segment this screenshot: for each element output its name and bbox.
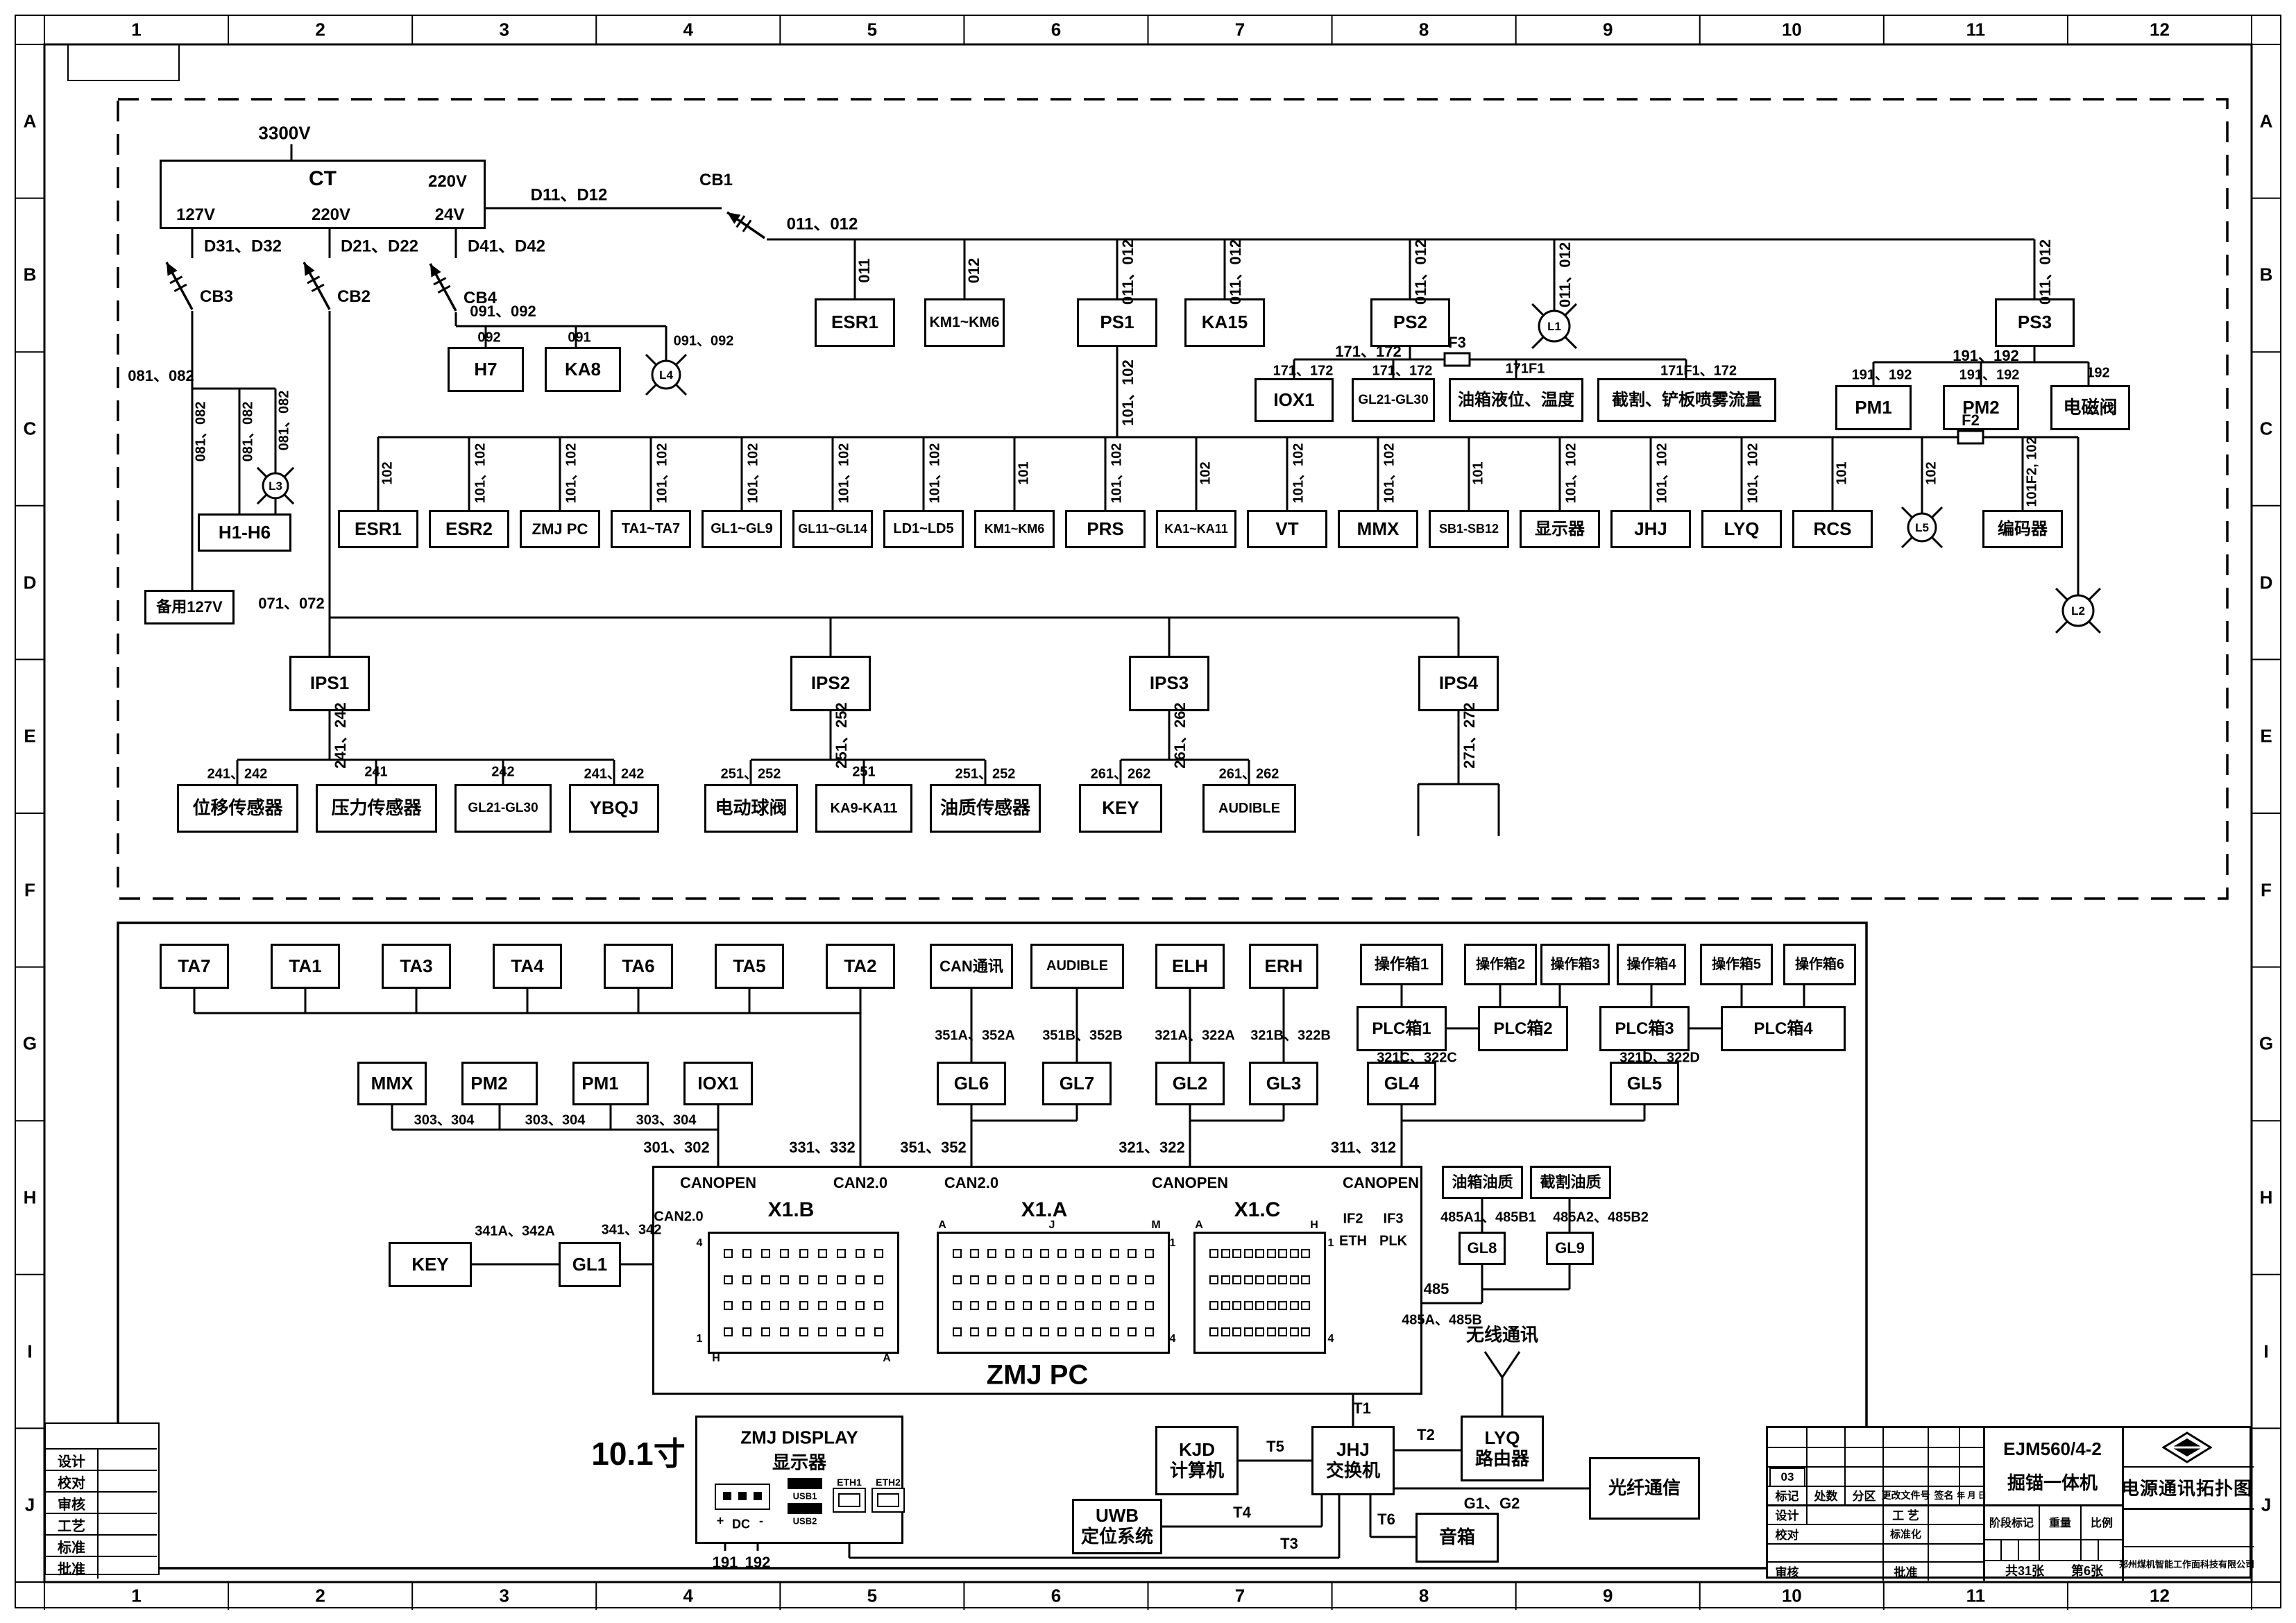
signature-row: 工艺	[46, 1513, 157, 1536]
pin	[1057, 1275, 1066, 1284]
box-label: UWB	[1096, 1506, 1139, 1527]
lamp-label: L4	[659, 368, 673, 382]
grid-col-1: 1	[131, 1586, 141, 1607]
box-label: JHJ	[1336, 1440, 1370, 1461]
box-label: CAN通讯	[939, 958, 1003, 975]
dc-pin	[738, 1492, 747, 1500]
wire-label: 303、304	[414, 1109, 475, 1129]
device-elh: ELH	[1155, 944, 1225, 989]
wire-label: J	[1049, 1219, 1055, 1232]
bus-rcs: RCS	[1792, 510, 1873, 548]
lamp-label: L1	[1547, 320, 1561, 333]
pin	[970, 1275, 979, 1284]
wire-label: 191、192	[1852, 364, 1912, 384]
grid-col-11: 11	[1966, 1586, 1986, 1607]
wire-label: A	[1195, 1219, 1203, 1232]
wire-label: 241、242	[207, 763, 268, 783]
box-label: PS1	[1100, 312, 1134, 333]
box-label: GL4	[1384, 1073, 1420, 1094]
box-label: GL1	[572, 1255, 608, 1275]
device-ka15: KA15	[1184, 298, 1265, 347]
bus-gl11-gl14: GL11~GL14	[792, 510, 873, 548]
usb1-port	[788, 1478, 822, 1489]
pin	[1278, 1275, 1287, 1284]
pin	[1278, 1249, 1287, 1258]
grid-col-11: 11	[1966, 19, 1986, 41]
pin	[1023, 1249, 1032, 1258]
box-label: 油箱油质	[1452, 1173, 1513, 1191]
wire-label: 101、102	[1287, 443, 1307, 504]
wire-label: H	[1310, 1219, 1318, 1232]
box-label: TA1~TA7	[622, 521, 680, 537]
wire-label: 091	[568, 330, 590, 346]
box-label: KA1~KA11	[1164, 522, 1228, 536]
wire-label: 261、262	[1219, 763, 1279, 783]
box-label: 操作箱3	[1550, 957, 1599, 973]
pin	[1267, 1327, 1276, 1336]
wire-label: 171、172	[1335, 339, 1401, 362]
box-label: H7	[474, 359, 497, 380]
pin	[1075, 1327, 1084, 1336]
pin	[1301, 1249, 1310, 1258]
box-label: GL1~GL9	[711, 521, 772, 537]
box-label: PS2	[1393, 312, 1427, 333]
wire-label: 192	[2086, 366, 2109, 382]
box-label: KM1~KM6	[930, 314, 1000, 331]
tb-approve: 批准	[1884, 1561, 1928, 1581]
grid-row-C: C	[24, 418, 37, 440]
spray-flow: 截割、铲板喷雾流量	[1597, 378, 1776, 422]
bus-prs: PRS	[1065, 510, 1146, 548]
pin	[874, 1249, 883, 1258]
op-box-6: 操作箱6	[1783, 944, 1856, 985]
tank-oil-quality: 油箱油质	[1442, 1166, 1523, 1199]
pin	[724, 1301, 733, 1310]
pin	[987, 1301, 996, 1310]
box-label: SB1-SB12	[1439, 522, 1499, 536]
device-key-ips3: KEY	[1079, 784, 1162, 833]
pin	[837, 1327, 846, 1336]
pin	[970, 1327, 979, 1336]
wire-label: A	[938, 1219, 946, 1232]
grid-row-A: A	[2260, 110, 2273, 132]
pin	[1244, 1301, 1253, 1310]
wire-label: ZMJ DISPLAY	[740, 1427, 858, 1449]
box-label: KEY	[411, 1255, 448, 1275]
pin	[1057, 1301, 1066, 1310]
wire-label: ETH1	[837, 1477, 862, 1488]
grid-col-4: 4	[683, 1586, 693, 1607]
device-ka8: KA8	[545, 347, 621, 392]
wire-label: 081、082	[273, 391, 293, 451]
box-label: 操作箱2	[1476, 957, 1525, 973]
box-label: GL8	[1468, 1239, 1497, 1257]
pin	[761, 1327, 770, 1336]
tb-check: 校对	[1768, 1524, 1806, 1543]
pin	[1290, 1301, 1299, 1310]
wire	[1502, 1352, 1520, 1377]
lamp-label: L3	[269, 479, 282, 493]
tb-rev-date: 年 月 日	[1960, 1486, 1983, 1504]
pin	[1092, 1301, 1101, 1310]
device-gl21-gl30-ips: GL21-GL30	[454, 784, 552, 833]
wire-label: 091、092	[674, 330, 734, 350]
wire-label: 101、102	[833, 443, 853, 504]
wire-label: CANOPEN	[1343, 1174, 1419, 1192]
wire-label: D31、D32	[204, 232, 282, 257]
grid-row-G: G	[2259, 1033, 2273, 1055]
signature-role-5: 标准	[46, 1536, 99, 1557]
wire-label: 311、312	[1331, 1135, 1396, 1157]
wire-label: 220V	[428, 172, 467, 192]
tb-weight: 重量	[2040, 1506, 2080, 1538]
device-gl3: GL3	[1249, 1062, 1318, 1105]
tb-drawing-title: 电源通讯拓扑图	[2122, 1466, 2252, 1508]
tb-design: 设计	[1768, 1504, 1806, 1524]
wire-label: 101	[1017, 461, 1032, 484]
wire-label: T1	[1353, 1400, 1371, 1418]
tb-stage: 阶段标记	[1984, 1506, 2039, 1538]
wire-label: T4	[1233, 1504, 1251, 1522]
wire-label: 171F1	[1506, 362, 1545, 377]
wire-label: 251、252	[955, 763, 1016, 783]
tb-machine: 掘锚一体机	[1983, 1466, 2122, 1497]
wire-label: 显示器	[772, 1449, 826, 1475]
box-label: 显示器	[1535, 520, 1585, 539]
wire-label: 011	[856, 258, 874, 283]
pin	[780, 1275, 789, 1284]
wire-label: 351B、352B	[1042, 1024, 1123, 1044]
fiber-comm: 光纤通信	[1589, 1457, 1700, 1520]
box-label: AUDIBLE	[1218, 801, 1280, 817]
electric-ball-valve: 电动球阀	[704, 784, 798, 833]
wire-label: 261、262	[1091, 763, 1151, 783]
wire-label: 101	[1835, 461, 1851, 484]
box-label: 位移传感器	[192, 798, 282, 819]
pin	[1128, 1249, 1137, 1258]
pin	[1057, 1249, 1066, 1258]
pin	[1005, 1249, 1014, 1258]
grid-col-8: 8	[1419, 1586, 1429, 1607]
wire-label: 351、352	[900, 1135, 966, 1157]
pin	[1267, 1249, 1276, 1258]
box-label: 操作箱6	[1795, 957, 1844, 973]
wire-label: 102	[380, 461, 396, 484]
wire-label: T2	[1417, 1426, 1435, 1444]
pin	[818, 1249, 827, 1258]
pin	[742, 1301, 751, 1310]
wire-label: 101、102	[1742, 443, 1762, 504]
box-label: GL7	[1060, 1073, 1095, 1094]
pin-connector	[708, 1232, 899, 1354]
wire-label: 331、332	[789, 1135, 855, 1157]
bus-jhj: JHJ	[1610, 510, 1691, 548]
box-label: 油质传感器	[940, 798, 1030, 819]
box-label: MMX	[1357, 519, 1400, 540]
wire-label: F3	[1448, 334, 1466, 352]
box-label: TA1	[289, 956, 321, 977]
wire-label: 251	[852, 765, 875, 781]
pin	[1040, 1327, 1049, 1336]
pin	[780, 1301, 789, 1310]
device-pm2-lower: PM2	[461, 1062, 538, 1105]
pin	[799, 1301, 808, 1310]
pin	[1023, 1301, 1032, 1310]
device-gl7: GL7	[1042, 1062, 1112, 1105]
box-sublabel: 交换机	[1326, 1461, 1380, 1481]
pin	[1110, 1301, 1119, 1310]
pin	[837, 1275, 846, 1284]
wire-label: 127V	[176, 205, 215, 225]
bus-encoder: 编码器	[1982, 510, 2063, 548]
pin	[1278, 1327, 1287, 1336]
left-signature-table: 设计校对审核工艺标准批准	[44, 1422, 160, 1575]
box-label: TA3	[400, 956, 432, 977]
revision-marker: 03	[1769, 1468, 1805, 1487]
wire-label: 081、082	[237, 402, 257, 462]
box-label: VT	[1275, 519, 1298, 540]
pin	[1255, 1275, 1264, 1284]
eth1-port-inner	[838, 1493, 860, 1507]
pin	[1255, 1301, 1264, 1310]
pin	[1075, 1301, 1084, 1310]
box-label: KEY	[1102, 798, 1139, 819]
grid-row-E: E	[2260, 726, 2272, 747]
solenoid-valve: 电磁阀	[2050, 385, 2130, 430]
wire-label: CT	[309, 167, 337, 191]
device-h1-h6: H1-H6	[198, 513, 291, 552]
wire-label: 321A、322A	[1155, 1024, 1235, 1044]
box-label: GL21-GL30	[468, 801, 538, 816]
grid-row-H: H	[24, 1187, 37, 1209]
device-key-lower: KEY	[389, 1242, 472, 1287]
usb2-port	[788, 1503, 822, 1514]
displacement-sensor: 位移传感器	[177, 784, 298, 833]
box-label: 操作箱5	[1712, 957, 1761, 973]
wire-label: 341A、342A	[475, 1220, 555, 1240]
lamp-label: L2	[2071, 604, 2085, 618]
box-label: MMX	[371, 1073, 414, 1094]
pin	[1040, 1301, 1049, 1310]
power-ps1: PS1	[1077, 298, 1157, 347]
device-gl21-gl30-upper: GL21-GL30	[1352, 378, 1435, 422]
wire-label: CAN2.0	[833, 1174, 887, 1192]
wire-label: A	[883, 1352, 891, 1365]
pin	[1075, 1249, 1084, 1258]
box-label: PLC箱2	[1493, 1019, 1552, 1039]
grid-row-J: J	[2261, 1495, 2271, 1516]
wire-label: 241	[364, 765, 387, 781]
wire-label: CAN2.0	[944, 1174, 998, 1192]
wire-label: 321C、322C	[1377, 1046, 1457, 1067]
wire-label: 101、102	[560, 443, 580, 504]
pin	[1209, 1327, 1218, 1336]
wire-label: 191	[713, 1554, 738, 1572]
plc-box-1: PLC箱1	[1357, 1006, 1447, 1051]
uwb-positioning: UWB定位系统	[1072, 1499, 1162, 1554]
wire-label: ZMJ PC	[987, 1360, 1089, 1391]
box-label: TA5	[733, 956, 765, 977]
wire-label: 485	[1424, 1280, 1449, 1298]
company-logo	[2162, 1431, 2212, 1463]
bus-km1-km6: KM1~KM6	[974, 510, 1055, 548]
box-label: 编码器	[1998, 520, 2048, 539]
grid-col-2: 2	[315, 19, 325, 41]
wire-label: CANOPEN	[1152, 1174, 1228, 1192]
bus-gl1-gl9: GL1~GL9	[701, 510, 782, 548]
device-ta2: TA2	[826, 944, 895, 989]
pin	[1005, 1275, 1014, 1284]
wire-label: 101F2, 102	[2025, 436, 2041, 507]
pin	[780, 1249, 789, 1258]
box-label: ESR1	[355, 519, 402, 540]
plc-box-3: PLC箱3	[1599, 1006, 1690, 1051]
box-label: 截割油质	[1540, 1173, 1601, 1191]
tb-rev-zone: 分区	[1846, 1486, 1882, 1504]
box-label: LYQ	[1484, 1428, 1520, 1449]
pin	[1023, 1275, 1032, 1284]
device-ta4: TA4	[493, 944, 562, 989]
pin	[1301, 1327, 1310, 1336]
bus-esr1: ESR1	[338, 510, 418, 548]
pin	[724, 1275, 733, 1284]
device-ta1: TA1	[271, 944, 340, 989]
wire-label: USB1	[793, 1491, 817, 1502]
grid-row-E: E	[24, 726, 35, 747]
wire-label: 192	[745, 1554, 771, 1572]
bus-vt: VT	[1247, 510, 1327, 548]
pin	[1267, 1275, 1276, 1284]
box-label: TA7	[178, 956, 210, 977]
grid-col-9: 9	[1603, 1586, 1613, 1607]
wire-label: 101、102	[1105, 443, 1125, 504]
signature-row: 设计	[46, 1448, 157, 1471]
pin	[724, 1249, 733, 1258]
pin	[1128, 1275, 1137, 1284]
box-label: 操作箱1	[1375, 955, 1429, 973]
box-label: RCS	[1814, 519, 1852, 540]
title-block: 03 标记 处数 分区 更改文件号 签名 年 月 日 设计 工 艺 校对 标准化…	[1766, 1426, 2252, 1579]
pin	[799, 1249, 808, 1258]
pin	[1092, 1275, 1101, 1284]
box-label: PM1	[581, 1073, 618, 1094]
signature-row: 标准	[46, 1534, 157, 1557]
box-label: 备用127V	[156, 598, 222, 615]
wire-label: 301、302	[643, 1135, 709, 1157]
wire-label: 102	[1924, 461, 1940, 484]
wire-label: 101、102	[1651, 443, 1671, 504]
wire-label: X1.C	[1234, 1198, 1281, 1222]
signature-role-1: 设计	[46, 1450, 99, 1471]
wire-label: 271、272	[1457, 702, 1479, 768]
grid-col-6: 6	[1051, 1586, 1061, 1607]
box-label: ESR2	[445, 519, 493, 540]
device-pm2-upper: PM2	[1943, 385, 2019, 430]
pin	[987, 1249, 996, 1258]
company-logo-cell	[2122, 1428, 2252, 1466]
pin	[818, 1275, 827, 1284]
pin	[818, 1327, 827, 1336]
pin	[761, 1301, 770, 1310]
wire-label: 4	[697, 1237, 703, 1250]
wire-label: 101、102	[924, 443, 944, 504]
pin	[1110, 1249, 1119, 1258]
box-label: TA6	[622, 956, 654, 977]
box-label: 油箱液位、温度	[1458, 391, 1574, 410]
pin	[953, 1327, 962, 1336]
device-pm1-upper: PM1	[1835, 385, 1912, 430]
wire-label: CB3	[200, 287, 233, 307]
device-audible-lower: AUDIBLE	[1030, 944, 1124, 989]
grid-row-D: D	[24, 572, 37, 593]
wire-label: 101、102	[651, 443, 671, 504]
lamp-label: L5	[1915, 521, 1929, 534]
wire-label: D21、D22	[341, 232, 418, 257]
wire-label: 251、252	[829, 702, 851, 768]
box-label: 光纤通信	[1608, 1478, 1681, 1499]
plc-box-4: PLC箱4	[1721, 1006, 1846, 1051]
box-label: GL11~GL14	[798, 522, 867, 536]
pin	[1244, 1249, 1253, 1258]
pin	[1023, 1327, 1032, 1336]
device-audible-ips3: AUDIBLE	[1202, 784, 1296, 833]
wire-label: X1.B	[768, 1198, 815, 1222]
grid-col-6: 6	[1051, 19, 1061, 41]
box-label: 截割、铲板喷雾流量	[1612, 391, 1762, 410]
pin	[970, 1249, 979, 1258]
device-gl1: GL1	[559, 1242, 621, 1287]
box-sublabel: 定位系统	[1081, 1527, 1153, 1547]
pin	[1092, 1249, 1101, 1258]
pin	[1145, 1301, 1154, 1310]
tb-rev-count: 处数	[1808, 1486, 1844, 1504]
box-label: KA9-KA11	[831, 801, 898, 817]
pin	[761, 1275, 770, 1284]
tb-sheet-no: 第6张	[2059, 1560, 2115, 1581]
box-label: H1-H6	[219, 522, 271, 543]
device-pm1-lower: PM1	[572, 1062, 649, 1105]
pin	[1145, 1327, 1154, 1336]
box-label: JHJ	[1634, 519, 1667, 540]
device-gl6: GL6	[937, 1062, 1006, 1105]
corner-box	[68, 44, 179, 80]
pin	[856, 1249, 865, 1258]
pin	[1221, 1249, 1230, 1258]
grid-col-2: 2	[315, 1586, 325, 1607]
box-label: PRS	[1087, 519, 1123, 540]
wire-label: 191、192	[1959, 364, 2020, 384]
pin	[837, 1301, 846, 1310]
wire-label: IF3	[1384, 1212, 1404, 1227]
wire-label: 011、012	[2033, 239, 2055, 305]
wire-label: CB2	[337, 287, 371, 307]
pin	[1209, 1249, 1218, 1258]
wire-label: 011、012	[1409, 239, 1431, 305]
bus-ka1-ka11: KA1~KA11	[1156, 510, 1236, 548]
box-label: IPS1	[310, 673, 349, 694]
box-label: GL9	[1555, 1239, 1585, 1257]
wire-label: ETH2	[876, 1477, 901, 1488]
device-ta7: TA7	[160, 944, 229, 989]
device-ybqj: YBQJ	[569, 784, 659, 833]
grid-row-I: I	[27, 1341, 32, 1362]
wire-label: 341、342	[602, 1218, 662, 1239]
wire-label: 011、012	[1116, 239, 1138, 305]
grid-row-B: B	[2260, 264, 2273, 286]
device-gl8: GL8	[1459, 1232, 1506, 1265]
pin	[1110, 1275, 1119, 1284]
box-label: KA8	[565, 359, 601, 380]
